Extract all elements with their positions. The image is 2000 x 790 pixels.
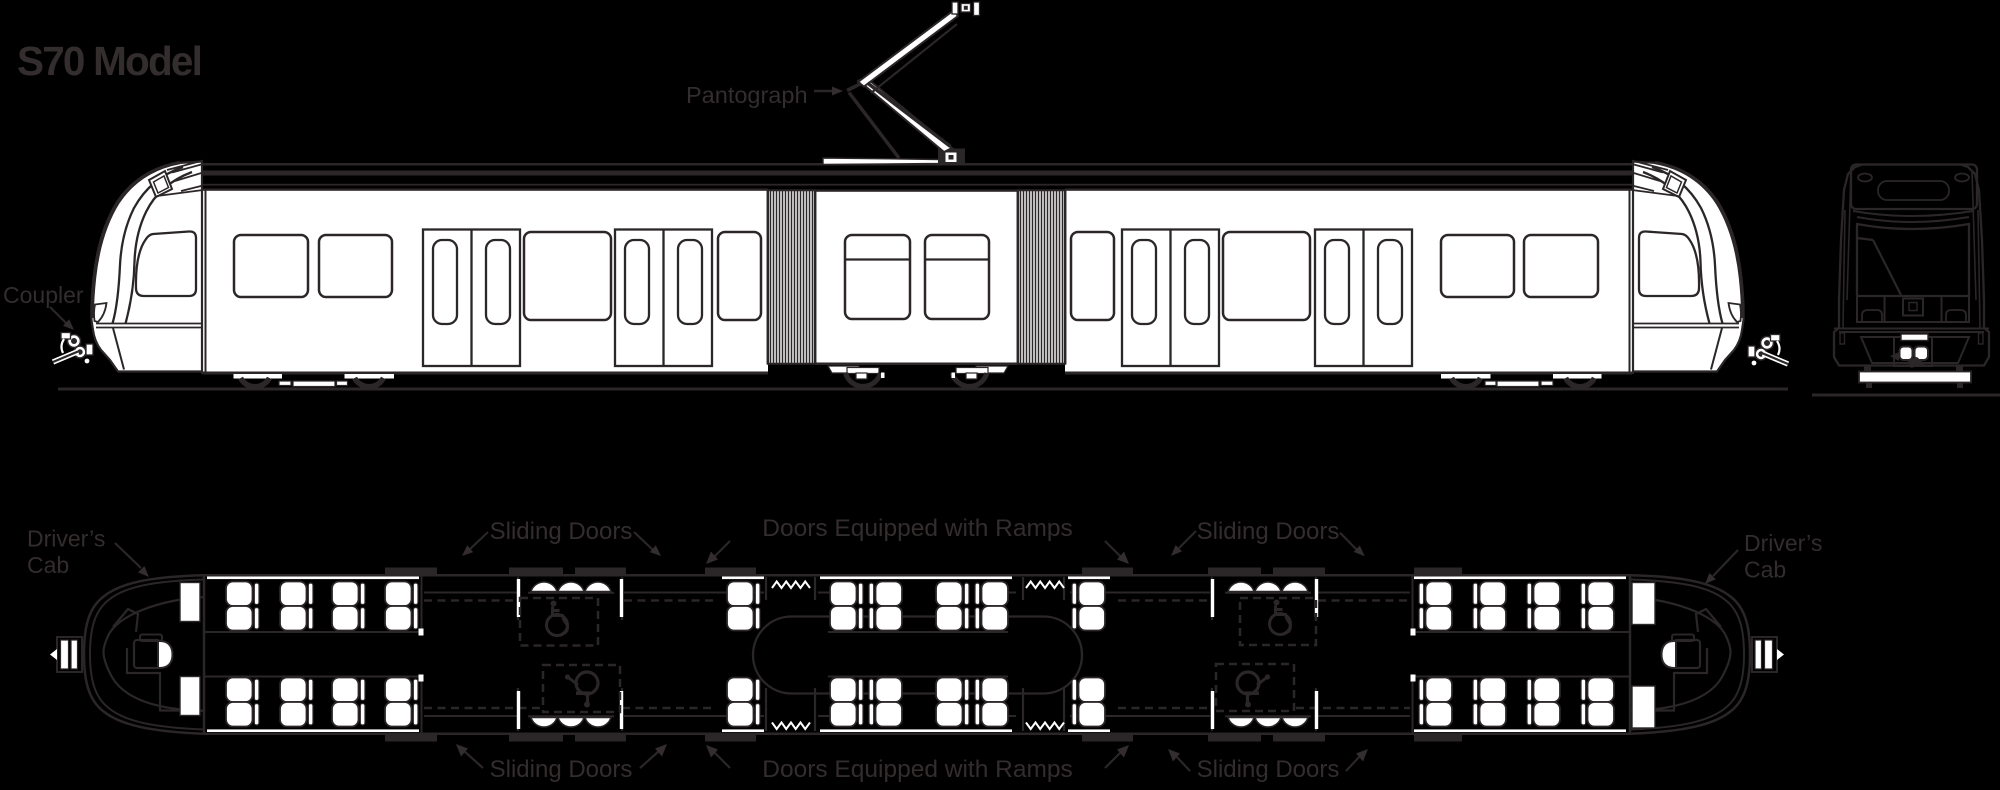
svg-text:Cab: Cab [27,552,69,578]
svg-text:Driver’s: Driver’s [27,526,105,552]
svg-text:Pantograph: Pantograph [686,82,808,108]
svg-text:Doors Equipped with Ramps: Doors Equipped with Ramps [762,515,1073,542]
svg-text:Doors Equipped with Ramps: Doors Equipped with Ramps [762,756,1073,783]
svg-text:Sliding Doors: Sliding Doors [1197,756,1340,783]
svg-text:Sliding Doors: Sliding Doors [490,518,633,545]
svg-text:Cab: Cab [1744,557,1786,583]
svg-text:Driver’s: Driver’s [1744,530,1822,556]
svg-text:S70 Model: S70 Model [17,38,201,84]
svg-text:Sliding Doors: Sliding Doors [490,756,633,783]
svg-text:Sliding Doors: Sliding Doors [1197,518,1340,545]
svg-text:Coupler: Coupler [3,282,84,308]
